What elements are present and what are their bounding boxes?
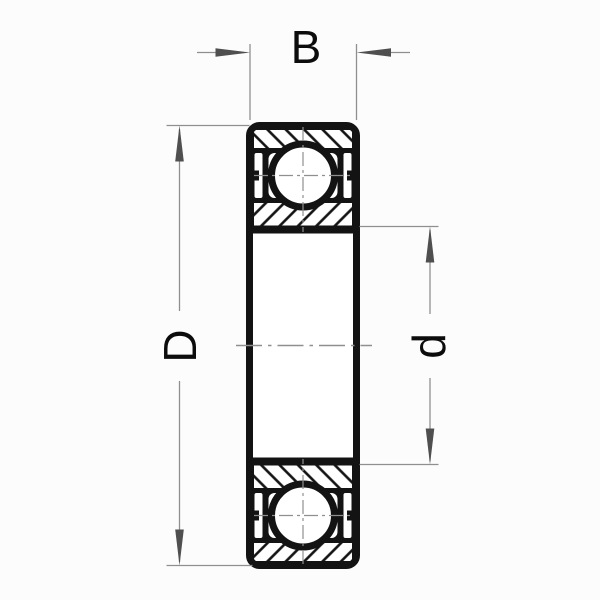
bore-diameter-dimension-label: d xyxy=(406,333,452,359)
outer-diameter-dimension-label: D xyxy=(157,329,203,362)
bearing-drawing-canvas: B D d xyxy=(0,0,600,600)
b-arrow-left-icon xyxy=(216,48,251,56)
bearing-cross-section-drawing xyxy=(0,0,600,600)
b-arrow-right-icon xyxy=(357,48,392,56)
d-bore-arrow-up-icon xyxy=(426,227,435,263)
d-bore-arrow-down-icon xyxy=(426,429,435,465)
bearing-section-bottom xyxy=(249,458,357,565)
bearing-section-top xyxy=(249,127,357,234)
d-outer-arrow-up-icon xyxy=(175,126,184,162)
d-outer-arrow-down-icon xyxy=(175,530,184,566)
width-dimension-label: B xyxy=(291,24,322,70)
